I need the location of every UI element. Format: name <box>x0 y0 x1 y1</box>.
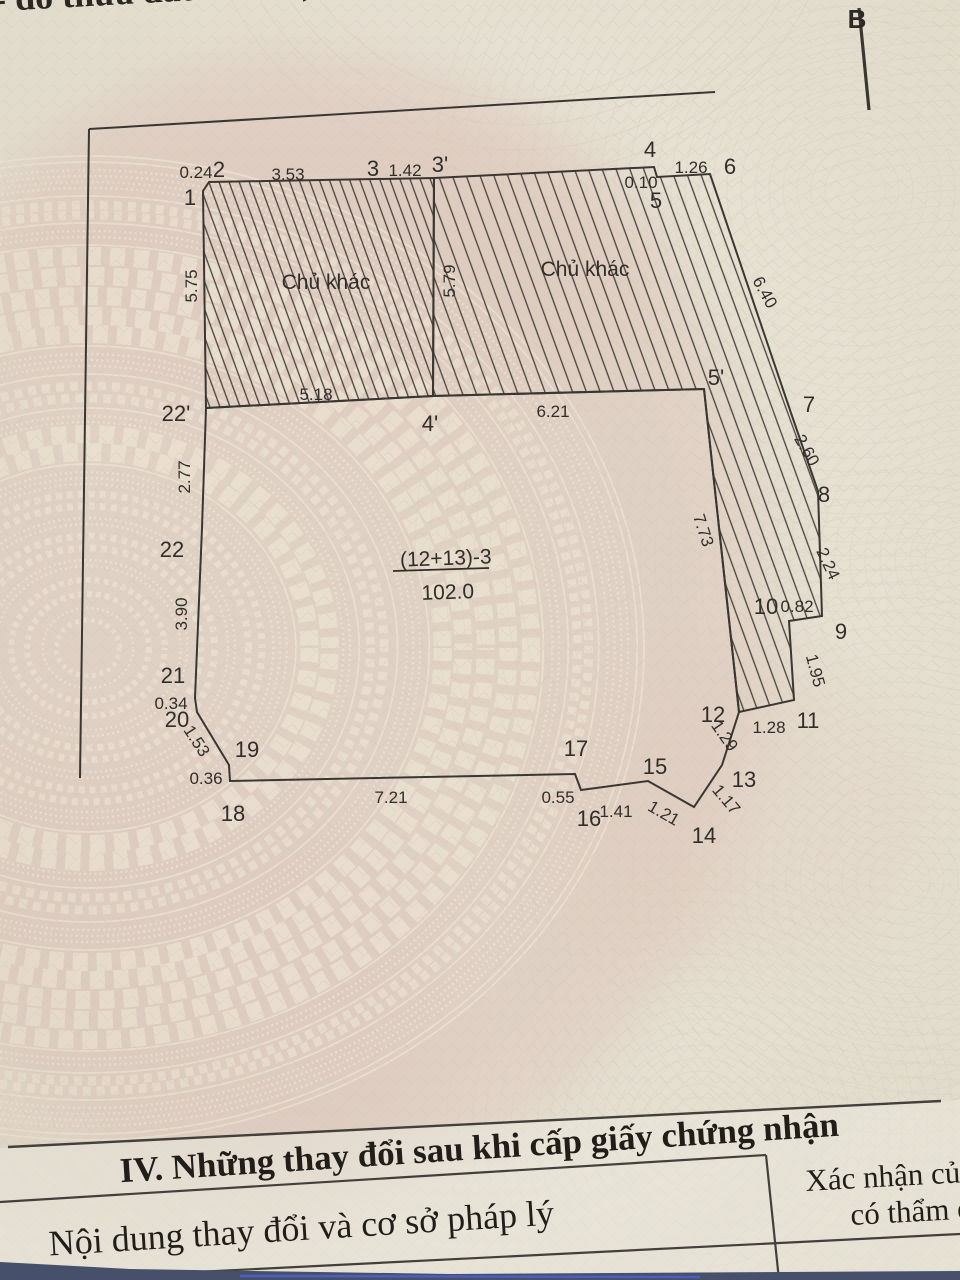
svg-text:14: 14 <box>692 823 716 848</box>
svg-text:8: 8 <box>818 482 830 507</box>
svg-text:2: 2 <box>213 157 225 182</box>
svg-text:0.36: 0.36 <box>189 769 222 788</box>
svg-text:1.26: 1.26 <box>674 158 707 177</box>
svg-text:5.18: 5.18 <box>299 385 332 404</box>
svg-text:21: 21 <box>161 663 185 688</box>
svg-text:9: 9 <box>835 619 847 644</box>
svg-text:6.21: 6.21 <box>536 402 569 421</box>
svg-text:Chủ khác: Chủ khác <box>541 258 630 281</box>
svg-text:5: 5 <box>650 188 662 213</box>
svg-text:3.90: 3.90 <box>172 597 191 630</box>
svg-text:0.24: 0.24 <box>179 163 212 182</box>
svg-text:1: 1 <box>184 185 196 210</box>
svg-text:10: 10 <box>754 594 778 619</box>
svg-text:16: 16 <box>577 806 601 831</box>
svg-text:102.0: 102.0 <box>421 580 474 605</box>
svg-text:13: 13 <box>732 767 756 792</box>
svg-text:3': 3' <box>432 152 448 177</box>
svg-text:1.41: 1.41 <box>599 802 632 821</box>
svg-text:có thẩm q: có thẩm q <box>849 1190 960 1232</box>
svg-text:5': 5' <box>708 365 724 390</box>
svg-text:4: 4 <box>644 137 656 162</box>
svg-text:19: 19 <box>235 737 259 762</box>
svg-text:18: 18 <box>221 801 245 826</box>
svg-text:7: 7 <box>803 392 815 417</box>
svg-text:17: 17 <box>564 736 588 761</box>
svg-text:0.55: 0.55 <box>541 788 574 807</box>
svg-text:5.75: 5.75 <box>182 269 201 302</box>
svg-text:1.42: 1.42 <box>388 161 421 180</box>
svg-text:11: 11 <box>797 708 820 733</box>
svg-text:22: 22 <box>160 537 184 562</box>
svg-text:,: , <box>300 0 311 4</box>
svg-text:Chủ khác: Chủ khác <box>282 271 371 294</box>
svg-text:3: 3 <box>367 156 379 181</box>
svg-text:0.82: 0.82 <box>780 597 813 616</box>
svg-text:1.28: 1.28 <box>752 718 785 737</box>
svg-text:2.77: 2.77 <box>175 460 194 493</box>
svg-text:6: 6 <box>724 154 736 179</box>
svg-text:5.79: 5.79 <box>440 264 459 297</box>
svg-text:22': 22' <box>162 401 191 426</box>
svg-text:4': 4' <box>422 411 438 436</box>
svg-text:15: 15 <box>643 754 667 779</box>
svg-text:3.53: 3.53 <box>271 165 304 184</box>
svg-text:B: B <box>848 4 867 34</box>
svg-text:7.21: 7.21 <box>374 788 407 807</box>
